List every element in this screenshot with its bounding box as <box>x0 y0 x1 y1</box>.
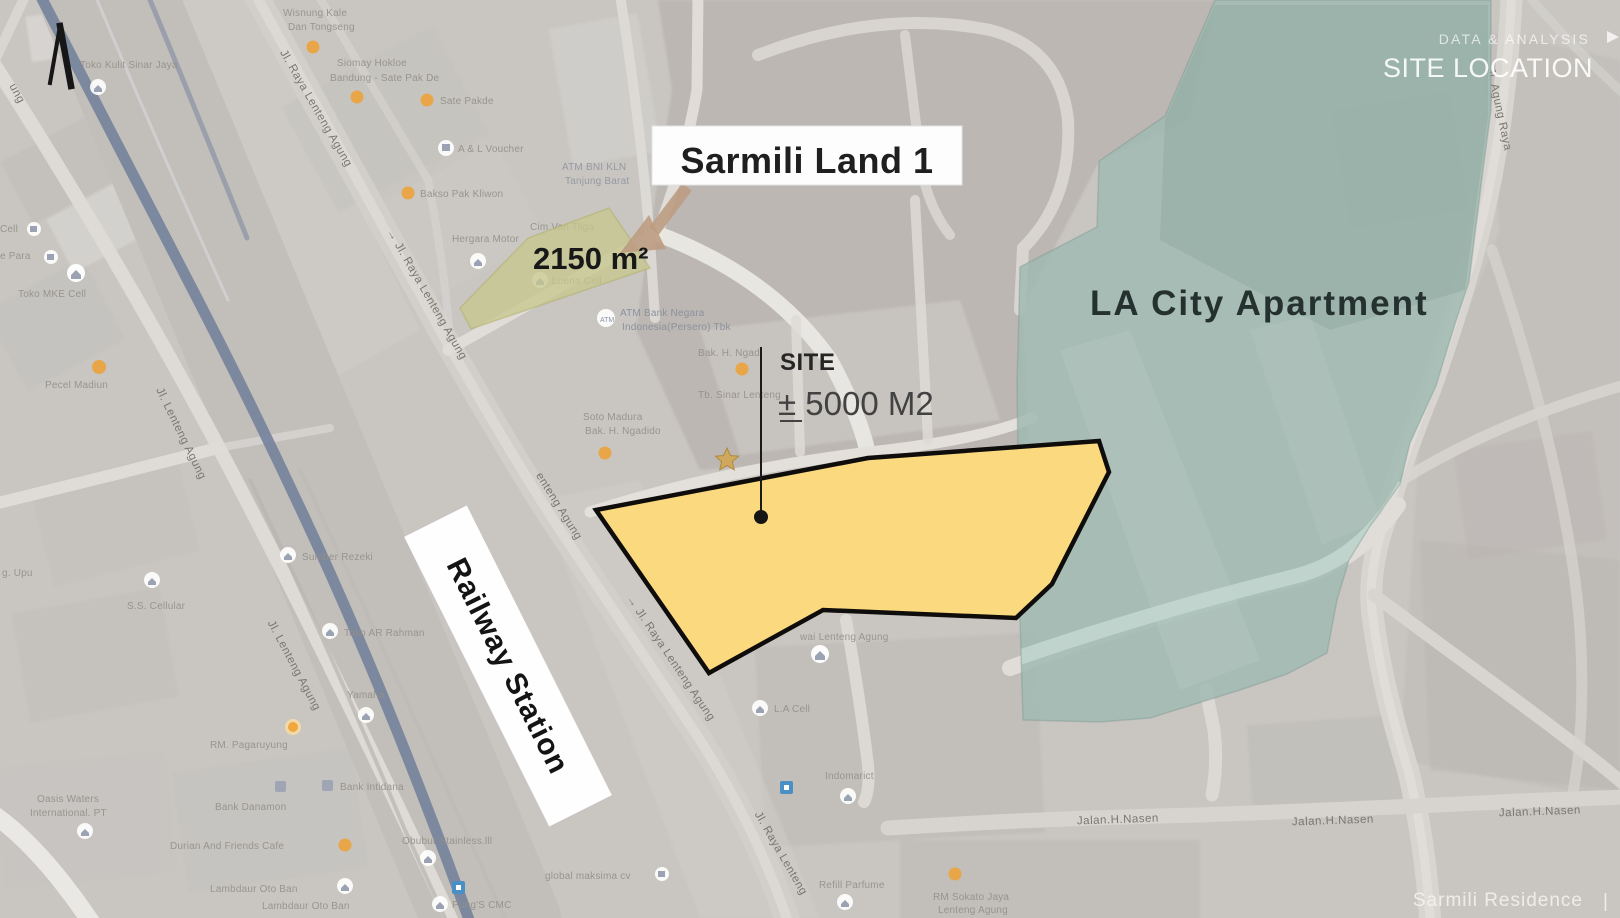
svg-text:ATM Bank Negara: ATM Bank Negara <box>620 308 705 319</box>
svg-text:International. PT: International. PT <box>30 808 107 819</box>
svg-text:Cell: Cell <box>0 224 18 235</box>
svg-text:L.A Cell: L.A Cell <box>774 704 810 715</box>
svg-text:LA City Apartment: LA City Apartment <box>1090 284 1429 323</box>
svg-text:Refill Parfume: Refill Parfume <box>819 880 885 891</box>
svg-text:g. Upu: g. Upu <box>2 568 33 579</box>
svg-text:Wisnung Kale: Wisnung Kale <box>283 8 347 19</box>
svg-text:Bandung - Sate Pak De: Bandung - Sate Pak De <box>330 73 440 84</box>
svg-text:RM. Pagaruyung: RM. Pagaruyung <box>210 740 288 751</box>
svg-text:Dan Tongseng: Dan Tongseng <box>288 22 355 33</box>
svg-text:Lambdaur Oto Ban: Lambdaur Oto Ban <box>262 901 350 912</box>
svg-text:Sarmili Land 1: Sarmili Land 1 <box>680 140 933 181</box>
svg-text:ATM: ATM <box>600 317 614 324</box>
svg-text:Indomarict: Indomarict <box>825 771 874 782</box>
svg-text:S.S. Cellular: S.S. Cellular <box>127 601 186 612</box>
svg-text:Bak. H. Ngadido: Bak. H. Ngadido <box>585 426 661 437</box>
svg-text:2150 m²: 2150 m² <box>533 241 648 276</box>
svg-text:Indonesia(Persero) Tbk: Indonesia(Persero) Tbk <box>622 322 732 333</box>
svg-text:Lambdaur Oto Ban: Lambdaur Oto Ban <box>210 884 298 895</box>
svg-text:Toko Kulit Sinar Jaya: Toko Kulit Sinar Jaya <box>80 60 178 71</box>
svg-text:DATA & ANALYSIS: DATA & ANALYSIS <box>1439 31 1590 47</box>
svg-text:Yamaha: Yamaha <box>347 690 385 701</box>
svg-text:wai Lenteng Agung: wai Lenteng Agung <box>799 632 888 643</box>
svg-text:Tb. Sinar Lenteng: Tb. Sinar Lenteng <box>698 390 781 401</box>
svg-text:e Para: e Para <box>0 251 31 262</box>
svg-text:ATM BNI KLN: ATM BNI KLN <box>562 162 626 173</box>
svg-text:Sate Pakde: Sate Pakde <box>440 96 494 107</box>
svg-text:Obubur Stainless.lll: Obubur Stainless.lll <box>402 836 492 847</box>
svg-text:Tanjung Barat: Tanjung Barat <box>565 176 629 187</box>
svg-text:SITE LOCATION: SITE LOCATION <box>1383 53 1593 83</box>
svg-text:Lenteng Agung: Lenteng Agung <box>938 905 1008 916</box>
svg-text:Soto Madura: Soto Madura <box>583 412 643 423</box>
svg-text:Siomay Hokloe: Siomay Hokloe <box>337 58 407 69</box>
svg-text:global maksima cv: global maksima cv <box>545 871 631 882</box>
svg-text:Toko MKE Cell: Toko MKE Cell <box>18 289 86 300</box>
svg-text:Oasis Waters: Oasis Waters <box>37 794 99 805</box>
svg-text:RM Sokato Jaya: RM Sokato Jaya <box>933 892 1009 903</box>
svg-text:Durian And Friends Cafe: Durian And Friends Cafe <box>170 841 284 852</box>
svg-text:Sumber Rezeki: Sumber Rezeki <box>302 552 373 563</box>
svg-text:± 5000 M2: ± 5000 M2 <box>778 385 934 422</box>
svg-text:Bakso Pak Kliwon: Bakso Pak Kliwon <box>420 189 503 200</box>
svg-text:Bank Danamon: Bank Danamon <box>215 802 286 813</box>
svg-text:A & L Voucher: A & L Voucher <box>458 144 524 155</box>
svg-text:Pung'S CMC: Pung'S CMC <box>452 900 512 911</box>
svg-text:Bank Intidana: Bank Intidana <box>340 782 404 793</box>
svg-text:SITE: SITE <box>780 349 835 376</box>
svg-text:|: | <box>1603 891 1608 912</box>
svg-text:Toko AR Rahman: Toko AR Rahman <box>344 628 425 639</box>
svg-text:Pecel Madiun: Pecel Madiun <box>45 380 108 391</box>
svg-text:Hergara Motor: Hergara Motor <box>452 234 520 245</box>
svg-text:Sarmili Residence: Sarmili Residence <box>1413 890 1583 911</box>
svg-text:Bak. H. Ngad: Bak. H. Ngad <box>698 348 760 359</box>
